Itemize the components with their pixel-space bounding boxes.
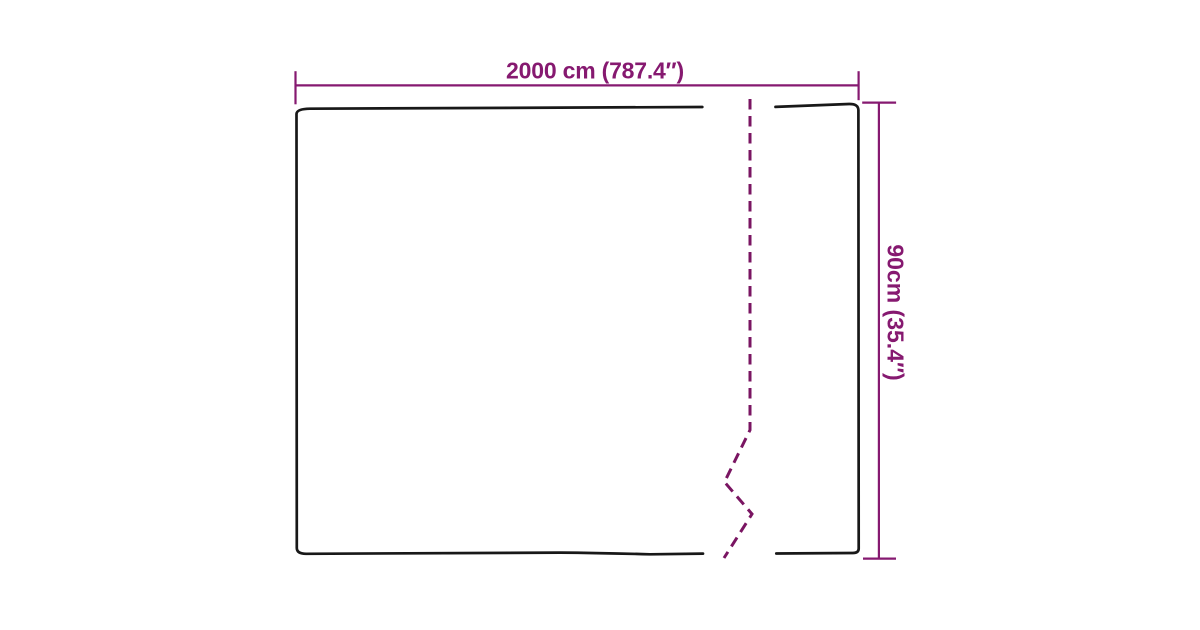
svg-text:90cm (35.4″): 90cm (35.4″) [883,244,909,380]
svg-text:2000 cm (787.4″): 2000 cm (787.4″) [506,58,684,84]
